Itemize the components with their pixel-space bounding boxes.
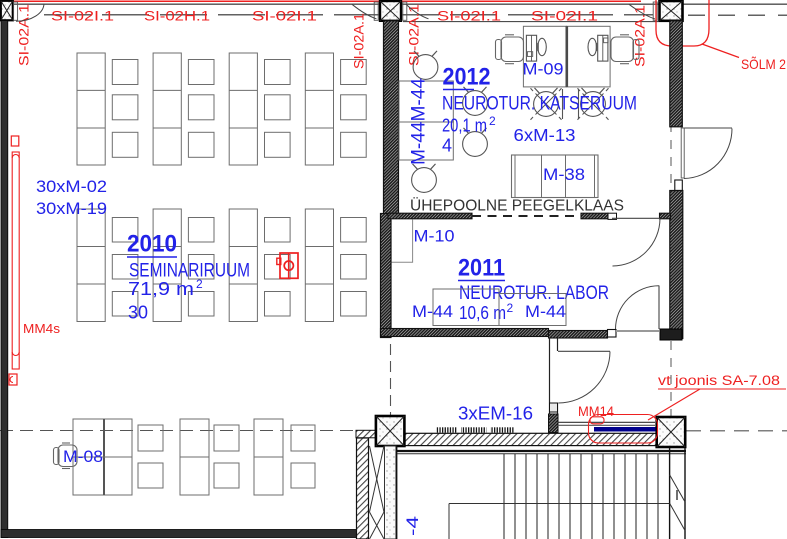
svg-text:MM4s: MM4s <box>23 321 61 336</box>
svg-text:6xM-13: 6xM-13 <box>514 125 576 145</box>
svg-text:71,9 m: 71,9 m <box>128 279 194 299</box>
svg-text:M-09: M-09 <box>523 60 564 79</box>
svg-text:SI-02A.1: SI-02A.1 <box>632 5 648 67</box>
svg-text:2: 2 <box>196 277 203 291</box>
svg-text:2011: 2011 <box>458 255 505 282</box>
svg-text:SI-02I.1: SI-02I.1 <box>437 8 501 24</box>
svg-text:SI-02I.1: SI-02I.1 <box>51 8 114 24</box>
svg-text:vt joonis SA-7.08: vt joonis SA-7.08 <box>658 373 780 388</box>
svg-text:M-10: M-10 <box>414 227 455 246</box>
svg-text:SI-02I.1: SI-02I.1 <box>252 8 317 24</box>
svg-text:M-38: M-38 <box>543 165 585 184</box>
svg-text:SI-02H.1: SI-02H.1 <box>144 8 210 24</box>
svg-text:M-08: M-08 <box>63 447 103 466</box>
svg-text:30xM-19: 30xM-19 <box>36 199 107 218</box>
svg-text:2012: 2012 <box>443 64 491 91</box>
svg-text:2010: 2010 <box>127 231 177 258</box>
svg-text:3xEM-16: 3xEM-16 <box>458 404 533 424</box>
svg-text:M-44M-44: M-44M-44 <box>409 78 430 165</box>
svg-text:ÜHEPOOLNE PEEGELKLAAS: ÜHEPOOLNE PEEGELKLAAS <box>410 197 624 215</box>
svg-text:SI-02A.1: SI-02A.1 <box>351 13 367 69</box>
svg-text:SI-02I.1: SI-02I.1 <box>531 8 598 24</box>
svg-text:30: 30 <box>128 303 148 323</box>
svg-text:30xM-02: 30xM-02 <box>36 177 107 196</box>
svg-text:SÕLM 2: SÕLM 2 <box>741 56 786 72</box>
svg-text:20,1 m: 20,1 m <box>442 116 487 136</box>
svg-text:M-44: M-44 <box>525 302 566 321</box>
svg-text:2: 2 <box>489 114 496 128</box>
svg-text:-4: -4 <box>403 516 422 536</box>
svg-text:MM14: MM14 <box>578 404 614 419</box>
svg-text:SI-02A.1: SI-02A.1 <box>16 4 32 66</box>
svg-text:2: 2 <box>507 301 514 315</box>
svg-text:NEUROTUR. KATSERUUM: NEUROTUR. KATSERUUM <box>442 94 637 115</box>
svg-text:4: 4 <box>442 136 452 156</box>
